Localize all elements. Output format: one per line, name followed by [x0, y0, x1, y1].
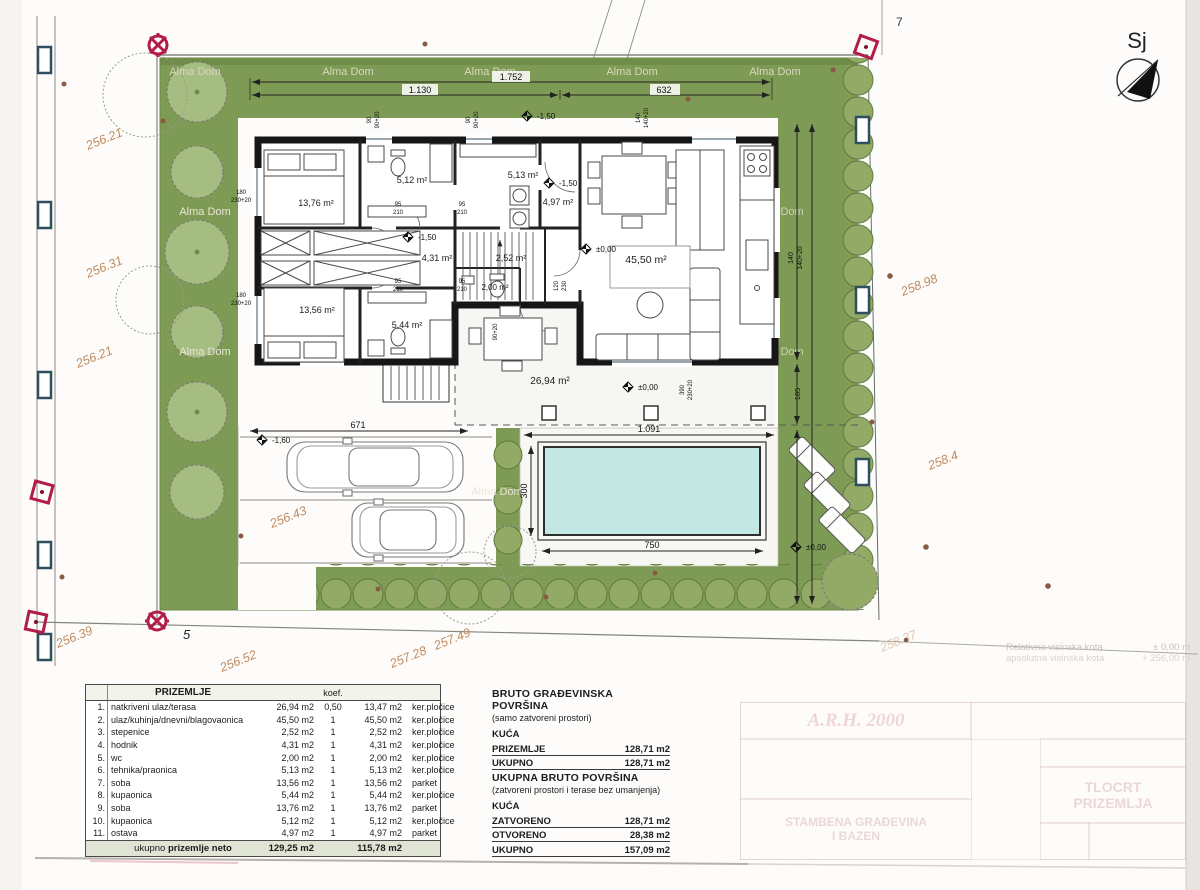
north-label: Sj — [1127, 28, 1147, 53]
svg-text:750: 750 — [644, 540, 659, 550]
svg-text:390: 390 — [680, 384, 686, 395]
gross-area-block-2: UKUPNA BRUTO POVRŠINA (zatvoreni prostor… — [492, 772, 670, 857]
svg-text:-1,50: -1,50 — [537, 112, 556, 121]
svg-text:180: 180 — [236, 293, 247, 299]
svg-text:256.31: 256.31 — [83, 253, 125, 281]
svg-text:257.49: 257.49 — [431, 625, 473, 653]
titleblock-project-line1: STAMBENA GRAĐEVINA — [785, 815, 927, 829]
room-label-living: 45,50 m² — [625, 254, 667, 266]
titleblock-logo: A.R.H. 2000 — [807, 710, 904, 732]
boundary-marker-square — [854, 35, 877, 58]
elevation-legend: Relativna visinska kota ± 0,00 m apsolut… — [1006, 642, 1190, 664]
room-label-bedroom2: 13,56 m² — [299, 305, 335, 315]
area-table-header: PRIZEMLJE koef. — [86, 685, 440, 701]
legend-absolute-label: apsolutna visinska kota — [1006, 653, 1104, 664]
legend-relative-label: Relativna visinska kota — [1006, 642, 1103, 653]
svg-text:Alma Dom: Alma Dom — [606, 66, 657, 78]
svg-text:257.28: 257.28 — [387, 643, 429, 671]
svg-text:258.4: 258.4 — [925, 448, 960, 473]
room-label-stairs: 2,52 m² — [496, 253, 527, 263]
svg-text:1.130: 1.130 — [409, 85, 432, 95]
svg-text:140: 140 — [636, 112, 642, 123]
table-row: 2.ulaz/kuhinja/dnevni/blagovaonica 45,50… — [86, 714, 440, 727]
svg-text:140+20: 140+20 — [797, 246, 804, 270]
svg-text:Alma Dom: Alma Dom — [749, 66, 800, 78]
gross1-subtitle: (samo zatvoreni prostori) — [492, 713, 670, 723]
room-label-bath2: 5,44 m² — [392, 320, 423, 330]
svg-text:140+20: 140+20 — [644, 107, 650, 128]
parcel-point-7-label: 7 — [896, 15, 903, 29]
gross2-subtitle: (zatvoreni prostori i terase bez umanjen… — [492, 785, 670, 795]
svg-text:256.21: 256.21 — [73, 343, 115, 371]
titleblock-drawing-line2: PRIZEMLJA — [1073, 795, 1152, 811]
svg-text:90+20: 90+20 — [474, 111, 480, 129]
legend-relative-value: ± 0,00 m — [1153, 642, 1190, 653]
table-row: 11.ostava 4,97 m21 4,97 m2parket — [86, 827, 440, 840]
table-row: 9.soba 13,76 m21 13,76 m2parket — [86, 802, 440, 815]
titleblock-drawing-line1: TLOCRT — [1085, 779, 1142, 795]
gross-area-block-1: BRUTO GRAĐEVINSKA POVRŠINA (samo zatvore… — [492, 688, 670, 770]
legend-absolute-value: + 256,00 m — [1142, 653, 1190, 664]
svg-text:300: 300 — [519, 483, 529, 498]
svg-text:671: 671 — [350, 420, 365, 430]
site-plan-sheet: Alma Dom Alma Dom Alma Dom Alma Dom Alma… — [0, 0, 1200, 890]
gross1-title: BRUTO GRAĐEVINSKA POVRŠINA — [492, 688, 670, 712]
svg-text:140: 140 — [788, 252, 795, 264]
svg-text:90+20: 90+20 — [493, 323, 499, 341]
svg-text:Alma Dom: Alma Dom — [179, 346, 230, 358]
svg-text:230+20: 230+20 — [231, 198, 252, 204]
terrace-post — [644, 406, 658, 420]
gross2-group: KUĆA — [492, 801, 670, 812]
svg-text:90+20: 90+20 — [375, 111, 381, 129]
room-label-tech: 5,13 m² — [508, 170, 539, 180]
svg-text:Alma Dom: Alma Dom — [322, 66, 373, 78]
table-row: 6.tehnika/praonica 5,13 m21 5,13 m2ker.p… — [86, 764, 440, 777]
svg-text:230+20: 230+20 — [688, 379, 694, 400]
svg-text:210: 210 — [393, 210, 404, 216]
svg-text:Alma Dom: Alma Dom — [471, 486, 522, 498]
svg-text:90: 90 — [466, 116, 472, 123]
svg-text:95: 95 — [459, 279, 466, 285]
svg-text:95: 95 — [395, 202, 402, 208]
north-arrow: Sj — [1117, 28, 1159, 101]
boundary-marker-square — [31, 481, 53, 503]
svg-text:256.52: 256.52 — [217, 647, 259, 675]
title-block: A.R.H. 2000 STAMBENA GRAĐEVINA I BAZEN T… — [740, 702, 1186, 860]
terrace-post — [542, 406, 556, 420]
svg-text:-1,50: -1,50 — [559, 179, 578, 188]
svg-text:258.98: 258.98 — [898, 271, 940, 299]
gross2-row: ZATVORENO128,71 m2 — [492, 813, 670, 828]
svg-text:256.21: 256.21 — [83, 125, 125, 153]
room-label-wc: 2,00 m² — [481, 283, 508, 292]
gross1-row: PRIZEMLJE128,71 m2 — [492, 741, 670, 756]
boundary-marker-wheel — [149, 33, 167, 57]
table-row: 7.soba 13,56 m21 13,56 m2parket — [86, 777, 440, 790]
svg-text:±0,00: ±0,00 — [596, 245, 617, 254]
svg-text:256.39: 256.39 — [53, 623, 95, 651]
table-row: 4.hodnik 4,31 m21 4,31 m2ker.pločice — [86, 739, 440, 752]
svg-text:±0,00: ±0,00 — [806, 543, 827, 552]
gross2-title: UKUPNA BRUTO POVRŠINA — [492, 772, 670, 784]
room-label-hall: 4,31 m² — [422, 253, 453, 263]
svg-text:1.091: 1.091 — [638, 424, 661, 434]
svg-text:230: 230 — [562, 280, 568, 291]
table-row: 10.kupaonica 5,12 m21 5,12 m2ker.pločice — [86, 814, 440, 827]
svg-text:210: 210 — [457, 210, 468, 216]
svg-text:180: 180 — [236, 190, 247, 196]
svg-text:258.37: 258.37 — [877, 627, 920, 655]
table-row: 5.wc 2,00 m21 2,00 m2ker.pločice — [86, 751, 440, 764]
exterior-stairs — [383, 364, 449, 402]
svg-text:Alma Dom: Alma Dom — [169, 66, 220, 78]
bottom-hedge — [316, 564, 856, 608]
svg-text:1.752: 1.752 — [500, 72, 523, 82]
svg-text:-1,60: -1,60 — [272, 436, 291, 445]
svg-text:230+20: 230+20 — [231, 301, 252, 307]
svg-text:120: 120 — [554, 280, 560, 291]
parcel-point-5-label: 5 — [183, 627, 191, 642]
gross2-row: UKUPNO157,09 m2 — [492, 842, 670, 857]
table-title: PRIZEMLJE — [108, 687, 258, 698]
pool-water — [544, 447, 760, 535]
gross2-row: OTVORENO28,38 m2 — [492, 828, 670, 843]
svg-text:185: 185 — [793, 388, 802, 401]
svg-text:632: 632 — [656, 85, 671, 95]
table-row: 1.natkriveni ulaz/terasa 26,94 m20,50 13… — [86, 701, 440, 714]
svg-text:90: 90 — [367, 116, 373, 123]
koef-header: koef. — [318, 688, 348, 698]
area-table: PRIZEMLJE koef. 1.natkriveni ulaz/terasa… — [85, 684, 441, 857]
gross1-group: KUĆA — [492, 729, 670, 740]
svg-text:Alma Dom: Alma Dom — [179, 206, 230, 218]
svg-text:210: 210 — [457, 287, 468, 293]
room-label-storage: 4,97 m² — [543, 197, 574, 207]
room-label-bedroom1: 13,76 m² — [298, 198, 334, 208]
gross1-row: UKUPNO128,71 m2 — [492, 756, 670, 771]
svg-text:210: 210 — [393, 287, 404, 293]
house: 13,76 m² 5,12 m² 5,13 m² 4,97 m² 4,31 m²… — [252, 134, 780, 387]
svg-text:±0,00: ±0,00 — [638, 383, 659, 392]
svg-text:-1,50: -1,50 — [418, 233, 437, 242]
titleblock-project-line2: I BAZEN — [832, 829, 880, 843]
table-row: 3.stepenice 2,52 m21 2,52 m2ker.pločice — [86, 726, 440, 739]
room-label-terrace: 26,94 m² — [530, 376, 570, 387]
room-label-bath1: 5,12 m² — [397, 175, 428, 185]
svg-text:95: 95 — [459, 202, 466, 208]
car — [352, 499, 464, 561]
table-total-row: ukupno prizemlje neto 129,25 m2 115,78 m… — [86, 840, 440, 856]
terrace-post — [751, 406, 765, 420]
car — [287, 438, 463, 496]
svg-text:95: 95 — [395, 279, 402, 285]
table-row: 8.kupaonica 5,44 m21 5,44 m2ker.pločice — [86, 789, 440, 802]
